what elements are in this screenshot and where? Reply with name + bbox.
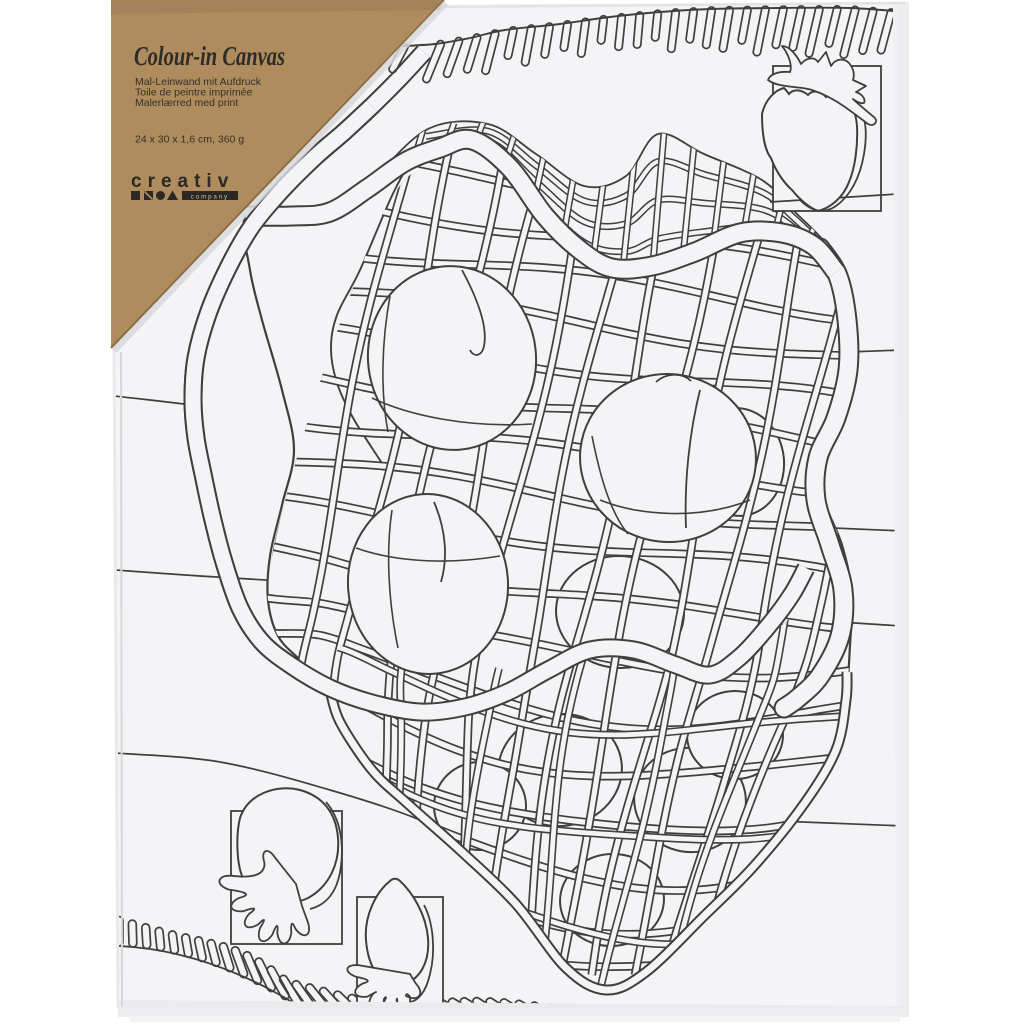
svg-text:company: company xyxy=(191,195,229,201)
svg-text:Colour-in Canvas: Colour-in Canvas xyxy=(134,42,285,71)
svg-text:24 x 30 x 1,6 cm, 360 g: 24 x 30 x 1,6 cm, 360 g xyxy=(135,134,244,146)
svg-text:creativ: creativ xyxy=(131,171,234,192)
svg-text:Malerlærred med print: Malerlærred med print xyxy=(135,97,238,109)
